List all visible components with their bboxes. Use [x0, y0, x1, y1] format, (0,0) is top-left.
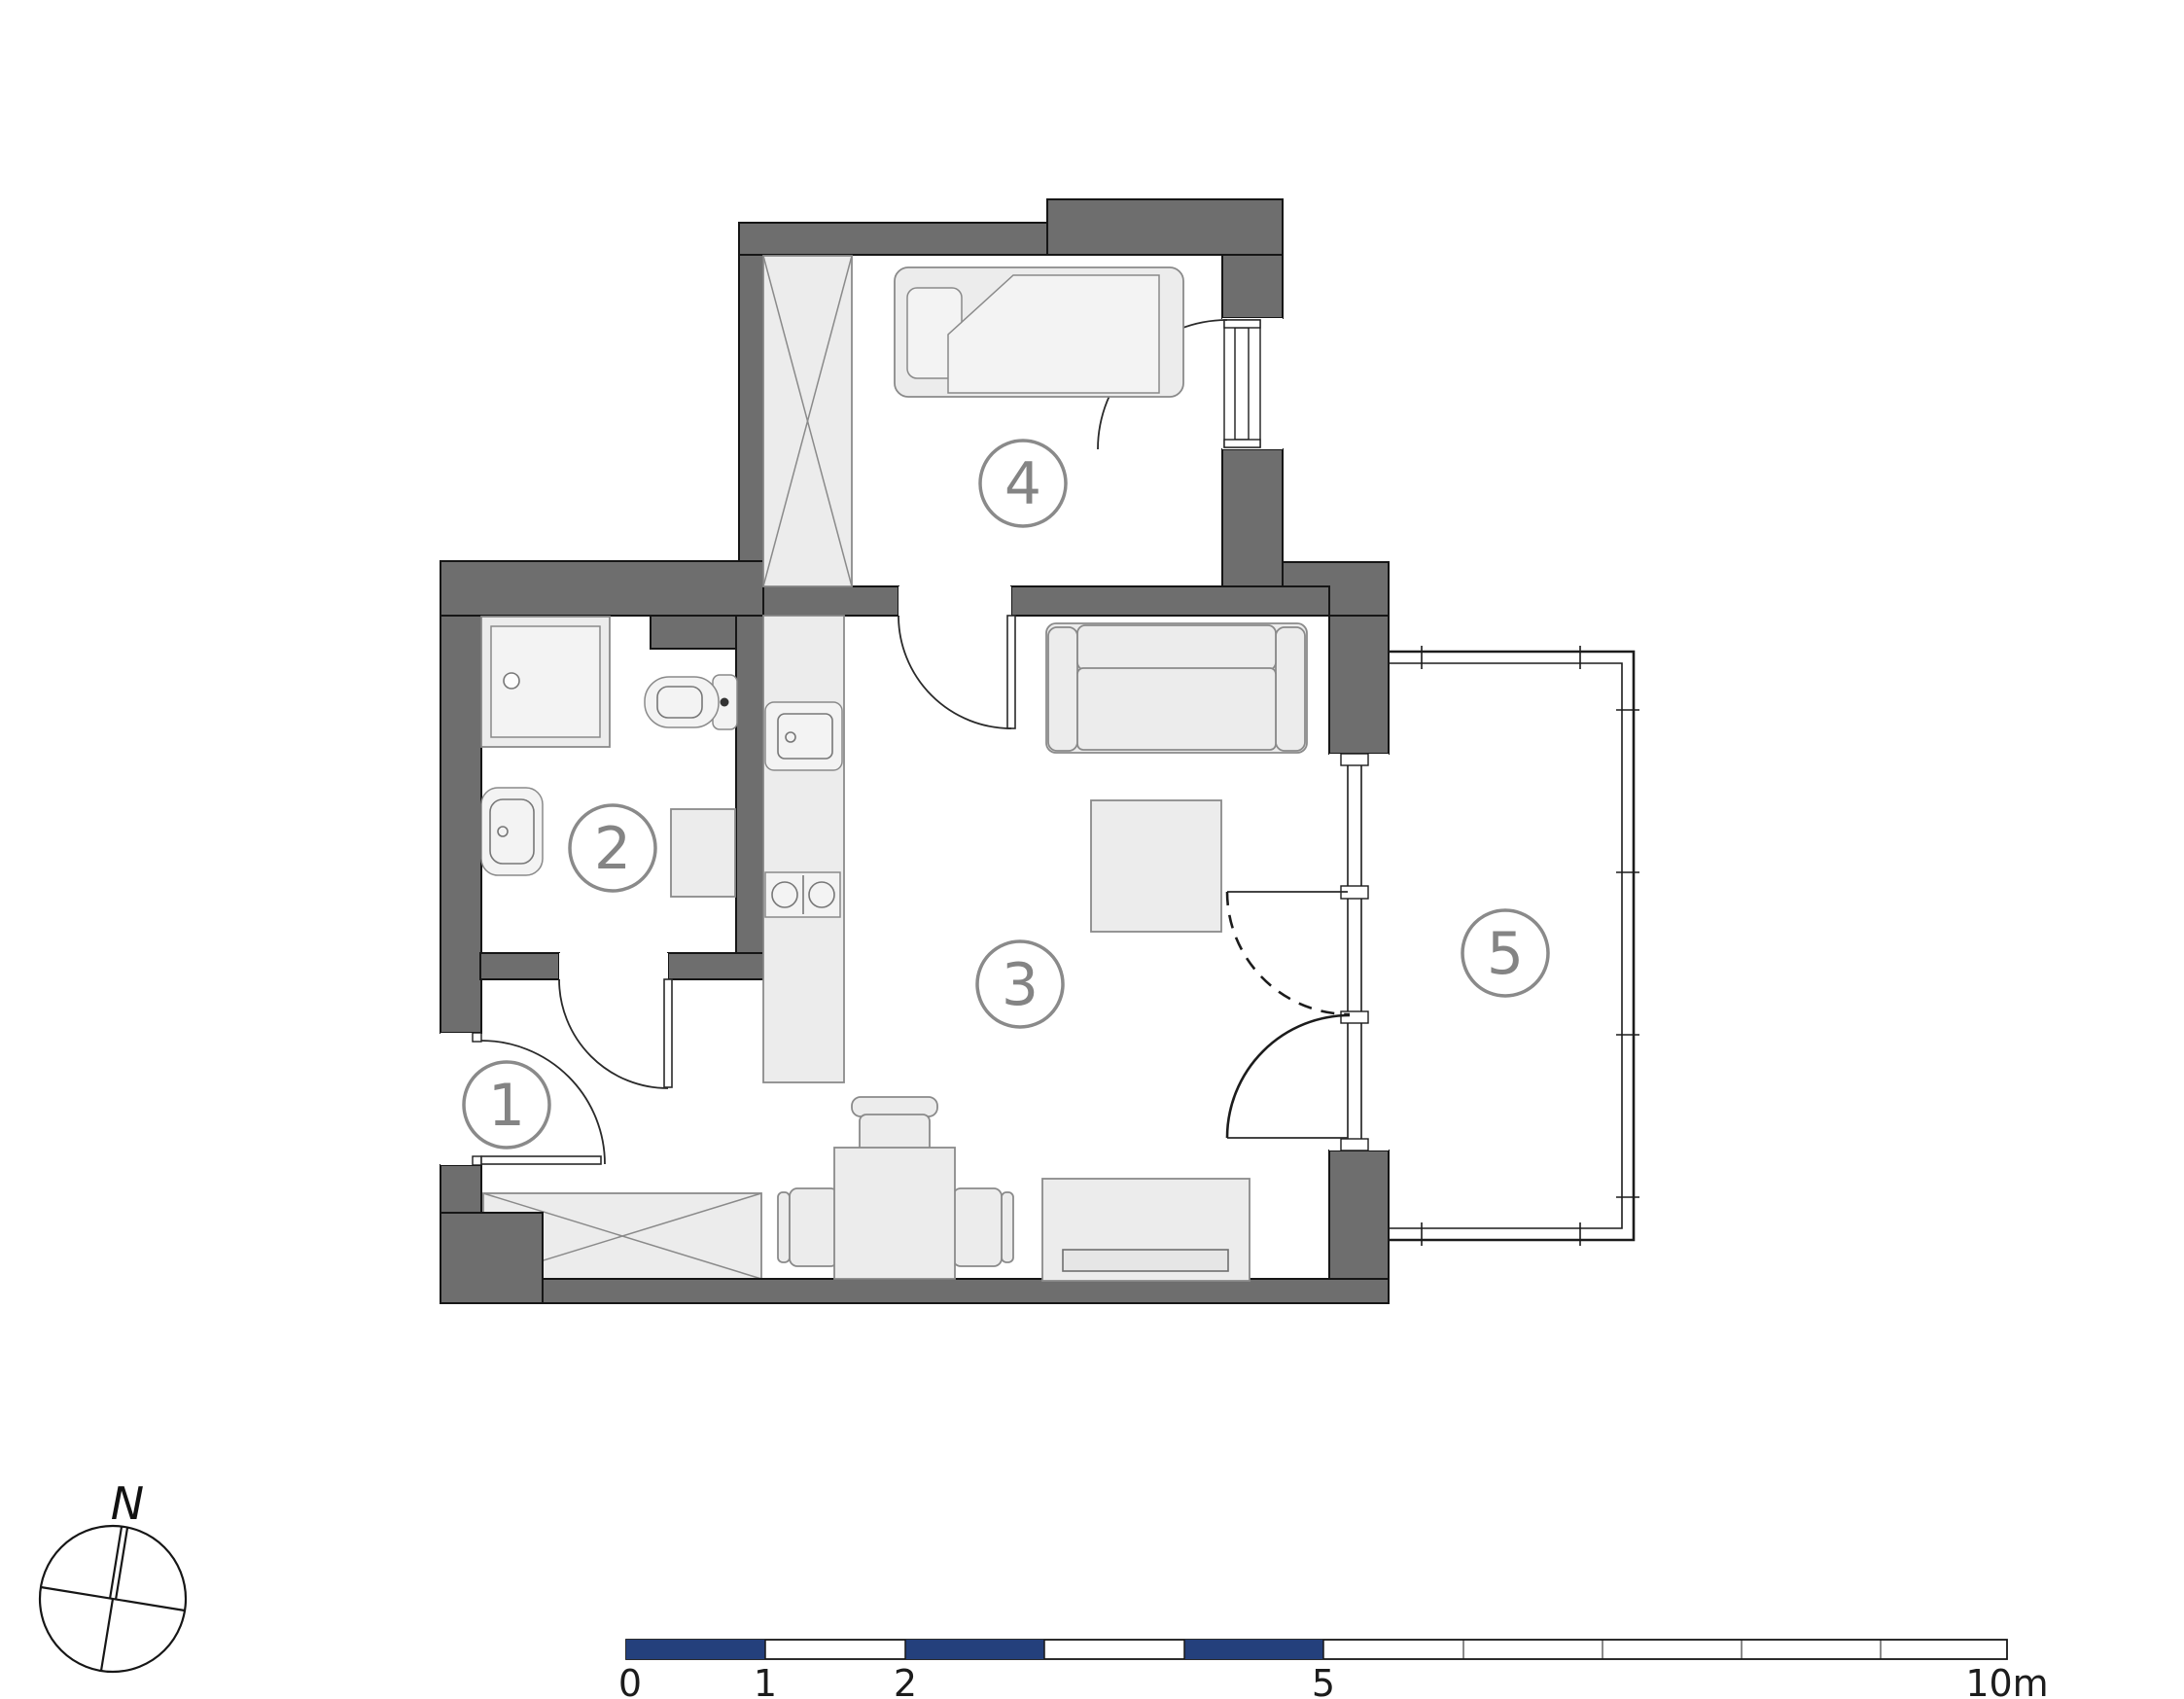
shower [481, 617, 610, 747]
scale-segment-filled [905, 1640, 1044, 1659]
entrance-jamb-bottom [473, 1156, 481, 1165]
room-label-2: 2 [570, 805, 655, 891]
coffee-table [1091, 800, 1221, 932]
sofa [1046, 623, 1307, 753]
scale-tick-label: 1 [754, 1662, 777, 1699]
svg-text:4: 4 [1004, 450, 1041, 518]
washing-machine [671, 809, 735, 897]
entrance-jamb-top [473, 1033, 481, 1042]
tv [1063, 1250, 1228, 1271]
compass-rose: N [40, 1477, 186, 1672]
living-room-window [1329, 754, 1389, 1150]
scale-segment-filled [626, 1640, 765, 1659]
door-swing-arc [898, 616, 1011, 728]
chair-backrest [778, 1192, 790, 1262]
bedroom-door [898, 616, 1015, 728]
tv-cabinet [1042, 1179, 1250, 1281]
floor-plan-drawing: 1 2 3 4 5 N 0 1 [0, 0, 2184, 1699]
room-label-5: 5 [1462, 910, 1548, 996]
compass-needle [116, 1528, 127, 1600]
floor-plan-page: 1 2 3 4 5 N 0 1 [0, 0, 2184, 1699]
compass-south-line [101, 1599, 113, 1671]
sofa-backrest [1077, 625, 1276, 670]
svg-text:3: 3 [1002, 951, 1039, 1019]
chair-backrest [1002, 1192, 1013, 1262]
scale-tick-label: 10m [1965, 1662, 2048, 1699]
kitchen-sink [765, 702, 842, 770]
scale-tick-label: 2 [894, 1662, 917, 1699]
sofa-seat [1077, 668, 1276, 750]
svg-text:5: 5 [1487, 920, 1524, 988]
dining-set [778, 1097, 1013, 1279]
chair-backrest [852, 1097, 937, 1116]
toilet [645, 675, 737, 729]
chair-seat [953, 1188, 1002, 1266]
compass-north-label: N [111, 1477, 144, 1530]
kitchen-counter [763, 616, 844, 1082]
dining-table [834, 1148, 955, 1279]
scale-tick-label: 5 [1312, 1662, 1335, 1699]
scale-bar: 0 1 2 5 10m [618, 1640, 2049, 1699]
bedroom-wardrobe [763, 256, 852, 586]
washbasin [481, 788, 543, 875]
cooktop [765, 872, 840, 917]
compass-needle [110, 1527, 122, 1599]
chair-seat [790, 1188, 838, 1266]
room-label-3: 3 [977, 941, 1063, 1027]
room-label-4: 4 [980, 441, 1066, 526]
bathroom-door [559, 979, 672, 1088]
svg-text:1: 1 [488, 1072, 525, 1140]
scale-segment-filled [1184, 1640, 1323, 1659]
sofa-armrest [1048, 627, 1077, 751]
svg-text:2: 2 [594, 815, 631, 883]
door-swing-arc [559, 979, 668, 1088]
scale-tick-label: 0 [618, 1662, 642, 1699]
sofa-armrest [1276, 627, 1305, 751]
window-mullion [1341, 1139, 1368, 1150]
window-mullion [1341, 754, 1368, 765]
bed [895, 267, 1183, 397]
